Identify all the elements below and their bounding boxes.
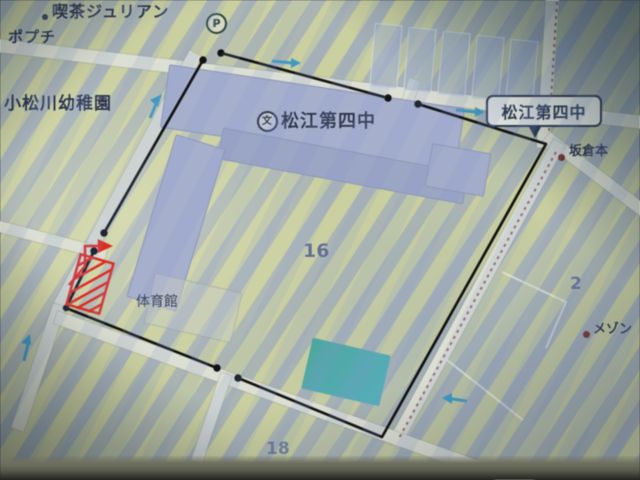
map-photo-screenshot: 喫茶ジュリアン ポプチ 小松川幼稚園 文 松江第四中 P 松江第四中 坂倉本 体… — [0, 0, 640, 480]
oneway-arrow-left — [24, 344, 28, 361]
arrowhead — [21, 334, 31, 345]
school-name-text: 松江第四中 — [281, 112, 376, 132]
oneway-arrow-topright — [456, 110, 476, 112]
block-outline — [447, 272, 566, 420]
poi-cafe-label: 喫茶ジュリアン — [52, 3, 169, 21]
red-arrowhead — [99, 241, 110, 251]
map-photo: 喫茶ジュリアン ポプチ 小松川幼稚園 文 松江第四中 P 松江第四中 坂倉本 体… — [0, 0, 640, 480]
block-number-18: 18 — [266, 440, 290, 459]
block-number-2: 2 — [570, 275, 582, 294]
school-map-label: 文 松江第四中 — [257, 111, 376, 132]
school-symbol-icon: 文 — [257, 111, 278, 132]
arrowhead — [442, 393, 452, 404]
poi-sakakura-label: 坂倉本 — [569, 145, 608, 159]
boundary-vertex-dots — [63, 49, 422, 381]
oneway-arrow-top — [272, 61, 292, 63]
oneway-arrow-bottomright — [452, 399, 467, 401]
block-number-16: 16 — [303, 241, 329, 262]
poi-dot-icon — [42, 14, 48, 20]
poi-maison-label: メゾン — [593, 323, 632, 337]
parking-icon: P — [206, 13, 227, 34]
poi-dot-icon — [583, 331, 590, 338]
poi-dot-icon — [558, 154, 565, 161]
arrowhead — [475, 107, 485, 117]
poi-popuchi-label: ポプチ — [8, 29, 56, 46]
balloon-tail — [528, 125, 542, 138]
arrowhead — [291, 58, 301, 68]
gymnasium-label: 体育館 — [136, 295, 178, 310]
red-hatched-marker — [66, 241, 113, 315]
road-centerline — [398, 2, 557, 440]
school-balloon-label[interactable]: 松江第四中 — [486, 95, 602, 127]
kindergarten-label: 小松川幼稚園 — [4, 95, 112, 114]
arrowhead — [150, 94, 162, 107]
